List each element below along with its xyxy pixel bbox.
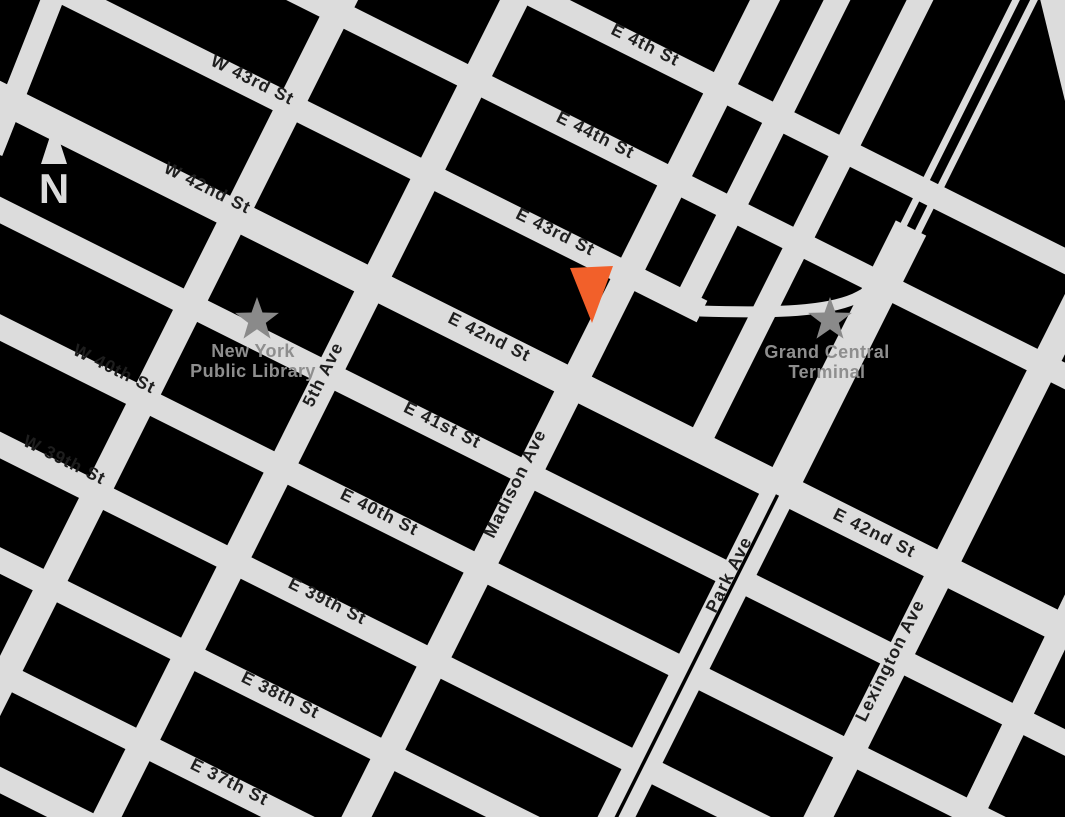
nypl-label-line2: Public Library [190, 361, 316, 381]
compass-north-label: N [39, 165, 69, 212]
nypl-label-line1: New York [211, 341, 295, 361]
gct-label-line2: Terminal [789, 362, 866, 382]
map-canvas: W 43rd St E 4th St E 44th St W 42nd St E… [0, 0, 1065, 817]
gct-label-line1: Grand Central [764, 342, 889, 362]
street-map: W 43rd St E 4th St E 44th St W 42nd St E… [0, 0, 1065, 817]
